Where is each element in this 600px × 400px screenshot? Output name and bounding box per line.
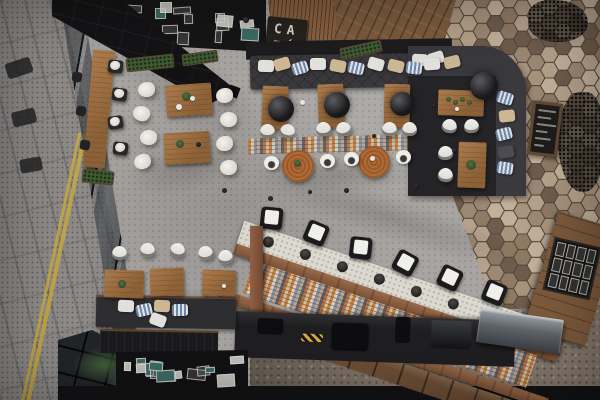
- counter-bowl: [261, 235, 275, 249]
- chalk-writing: [537, 116, 551, 120]
- floor-spot: [344, 188, 349, 193]
- picture-frame: [216, 15, 233, 29]
- picture-frame: [241, 27, 260, 41]
- counter-bowl: [372, 272, 386, 286]
- throw-pillow: [424, 57, 441, 70]
- sheepskin-chair: [111, 87, 128, 102]
- throw-pillow: [154, 300, 171, 313]
- coffee-grinder: [395, 317, 411, 344]
- white-shell-chair: [402, 122, 417, 136]
- counter-bowl: [409, 285, 423, 299]
- pendant-lamp: [324, 92, 350, 118]
- white-shell-chair: [260, 124, 275, 138]
- espresso-machine: [332, 323, 369, 350]
- throw-pillow: [496, 161, 514, 175]
- white-shell-chair: [140, 243, 156, 258]
- floor-spot: [452, 148, 457, 153]
- bar-stool: [349, 236, 373, 260]
- table-plant: [466, 160, 476, 170]
- floor-spot: [196, 142, 201, 147]
- sheepskin-cushion: [114, 88, 125, 98]
- plate-cup: [176, 104, 182, 110]
- picture-frame: [155, 369, 175, 383]
- picture-frame: [184, 14, 194, 24]
- pendant-lamp: [268, 96, 294, 122]
- cafe-render: CA FÉ: [0, 0, 600, 400]
- table-plant: [294, 160, 301, 167]
- throw-pillow: [310, 58, 326, 70]
- dining-table: [150, 267, 185, 296]
- window-stool: [75, 105, 86, 116]
- round-table-chair: [320, 154, 335, 168]
- picture-frame: [216, 373, 235, 387]
- hazard-plate: [301, 333, 323, 342]
- plate-cup: [300, 100, 305, 105]
- chalk-writing: [538, 109, 556, 113]
- window-stool: [71, 71, 82, 82]
- floor-spot: [414, 184, 419, 189]
- table-plant: [118, 280, 126, 288]
- menu-item-sketch: [582, 264, 593, 280]
- picture-frame: [214, 30, 222, 43]
- table-plant: [453, 100, 458, 105]
- bar-stool-seat: [307, 223, 325, 241]
- round-wood-table: [358, 146, 390, 178]
- menu-board: [543, 237, 600, 300]
- chalk-writing: [534, 144, 544, 147]
- table-plant: [176, 140, 184, 148]
- sheepskin-cushion: [110, 60, 121, 70]
- floor-spot: [372, 134, 376, 138]
- menu-item-sketch: [585, 249, 596, 265]
- sheepskin-chair: [107, 115, 124, 130]
- picture-frame: [204, 367, 214, 374]
- throw-pillow: [258, 60, 274, 72]
- round-table-chair: [264, 156, 279, 170]
- moss-patch: [528, 0, 588, 42]
- dining-table: [163, 131, 211, 165]
- menu-item-sketch: [578, 280, 589, 296]
- round-table-chair: [396, 150, 411, 164]
- throw-pillow: [498, 109, 515, 122]
- table-plant: [467, 100, 472, 105]
- picture-frame: [123, 361, 130, 371]
- moss-patch: [558, 92, 600, 192]
- plate-cup: [190, 96, 195, 101]
- chalk-writing: [536, 130, 548, 133]
- bar-stool-seat: [264, 210, 279, 225]
- counter-bowl: [298, 247, 312, 261]
- kitchen-counter: [234, 311, 515, 367]
- round-table-chair: [344, 152, 359, 166]
- pendant-lamp: [470, 72, 498, 100]
- floor-spot: [243, 17, 249, 23]
- gallery-picture-wall-bottom: [116, 350, 248, 390]
- plate-cup: [455, 107, 459, 111]
- plate-cup: [222, 284, 226, 288]
- pendant-lamp: [390, 92, 414, 116]
- picture-frame: [229, 355, 243, 364]
- white-shell-chair: [382, 121, 398, 136]
- floor-spot: [432, 104, 436, 108]
- throw-pillow: [405, 61, 422, 75]
- floor-spot: [268, 196, 273, 201]
- dining-table: [202, 269, 237, 296]
- bar-stool-seat: [441, 268, 460, 287]
- bar-stool-seat: [486, 283, 504, 301]
- picture-frame: [135, 364, 146, 373]
- sheepskin-cushion: [109, 116, 120, 126]
- throw-pillow: [172, 304, 188, 317]
- floor-spot: [308, 190, 312, 194]
- chalk-writing: [535, 137, 551, 141]
- white-shell-chair: [112, 246, 127, 260]
- bar-stool: [260, 206, 284, 230]
- bar-stool-seat: [353, 239, 368, 254]
- plate-cup: [370, 156, 375, 161]
- throw-pillow: [497, 145, 515, 159]
- fluffy-chair: [220, 160, 237, 176]
- chalk-writing: [536, 123, 556, 127]
- table-plant: [460, 97, 465, 102]
- sheepskin-cushion: [115, 142, 126, 152]
- sheepskin-chair: [112, 141, 128, 155]
- back-bar-equipment: [431, 320, 472, 349]
- bar-stool-seat: [396, 253, 415, 272]
- counter-bowl: [335, 260, 349, 274]
- sheepskin-chair: [107, 59, 123, 73]
- canisters: [257, 318, 284, 335]
- window-stool: [79, 139, 90, 150]
- throw-pillow: [118, 300, 135, 313]
- floor-spot: [222, 188, 227, 193]
- counter-bowl: [446, 297, 460, 311]
- table-plant: [446, 97, 451, 102]
- picture-frame: [149, 361, 164, 371]
- picture-frame: [160, 2, 172, 13]
